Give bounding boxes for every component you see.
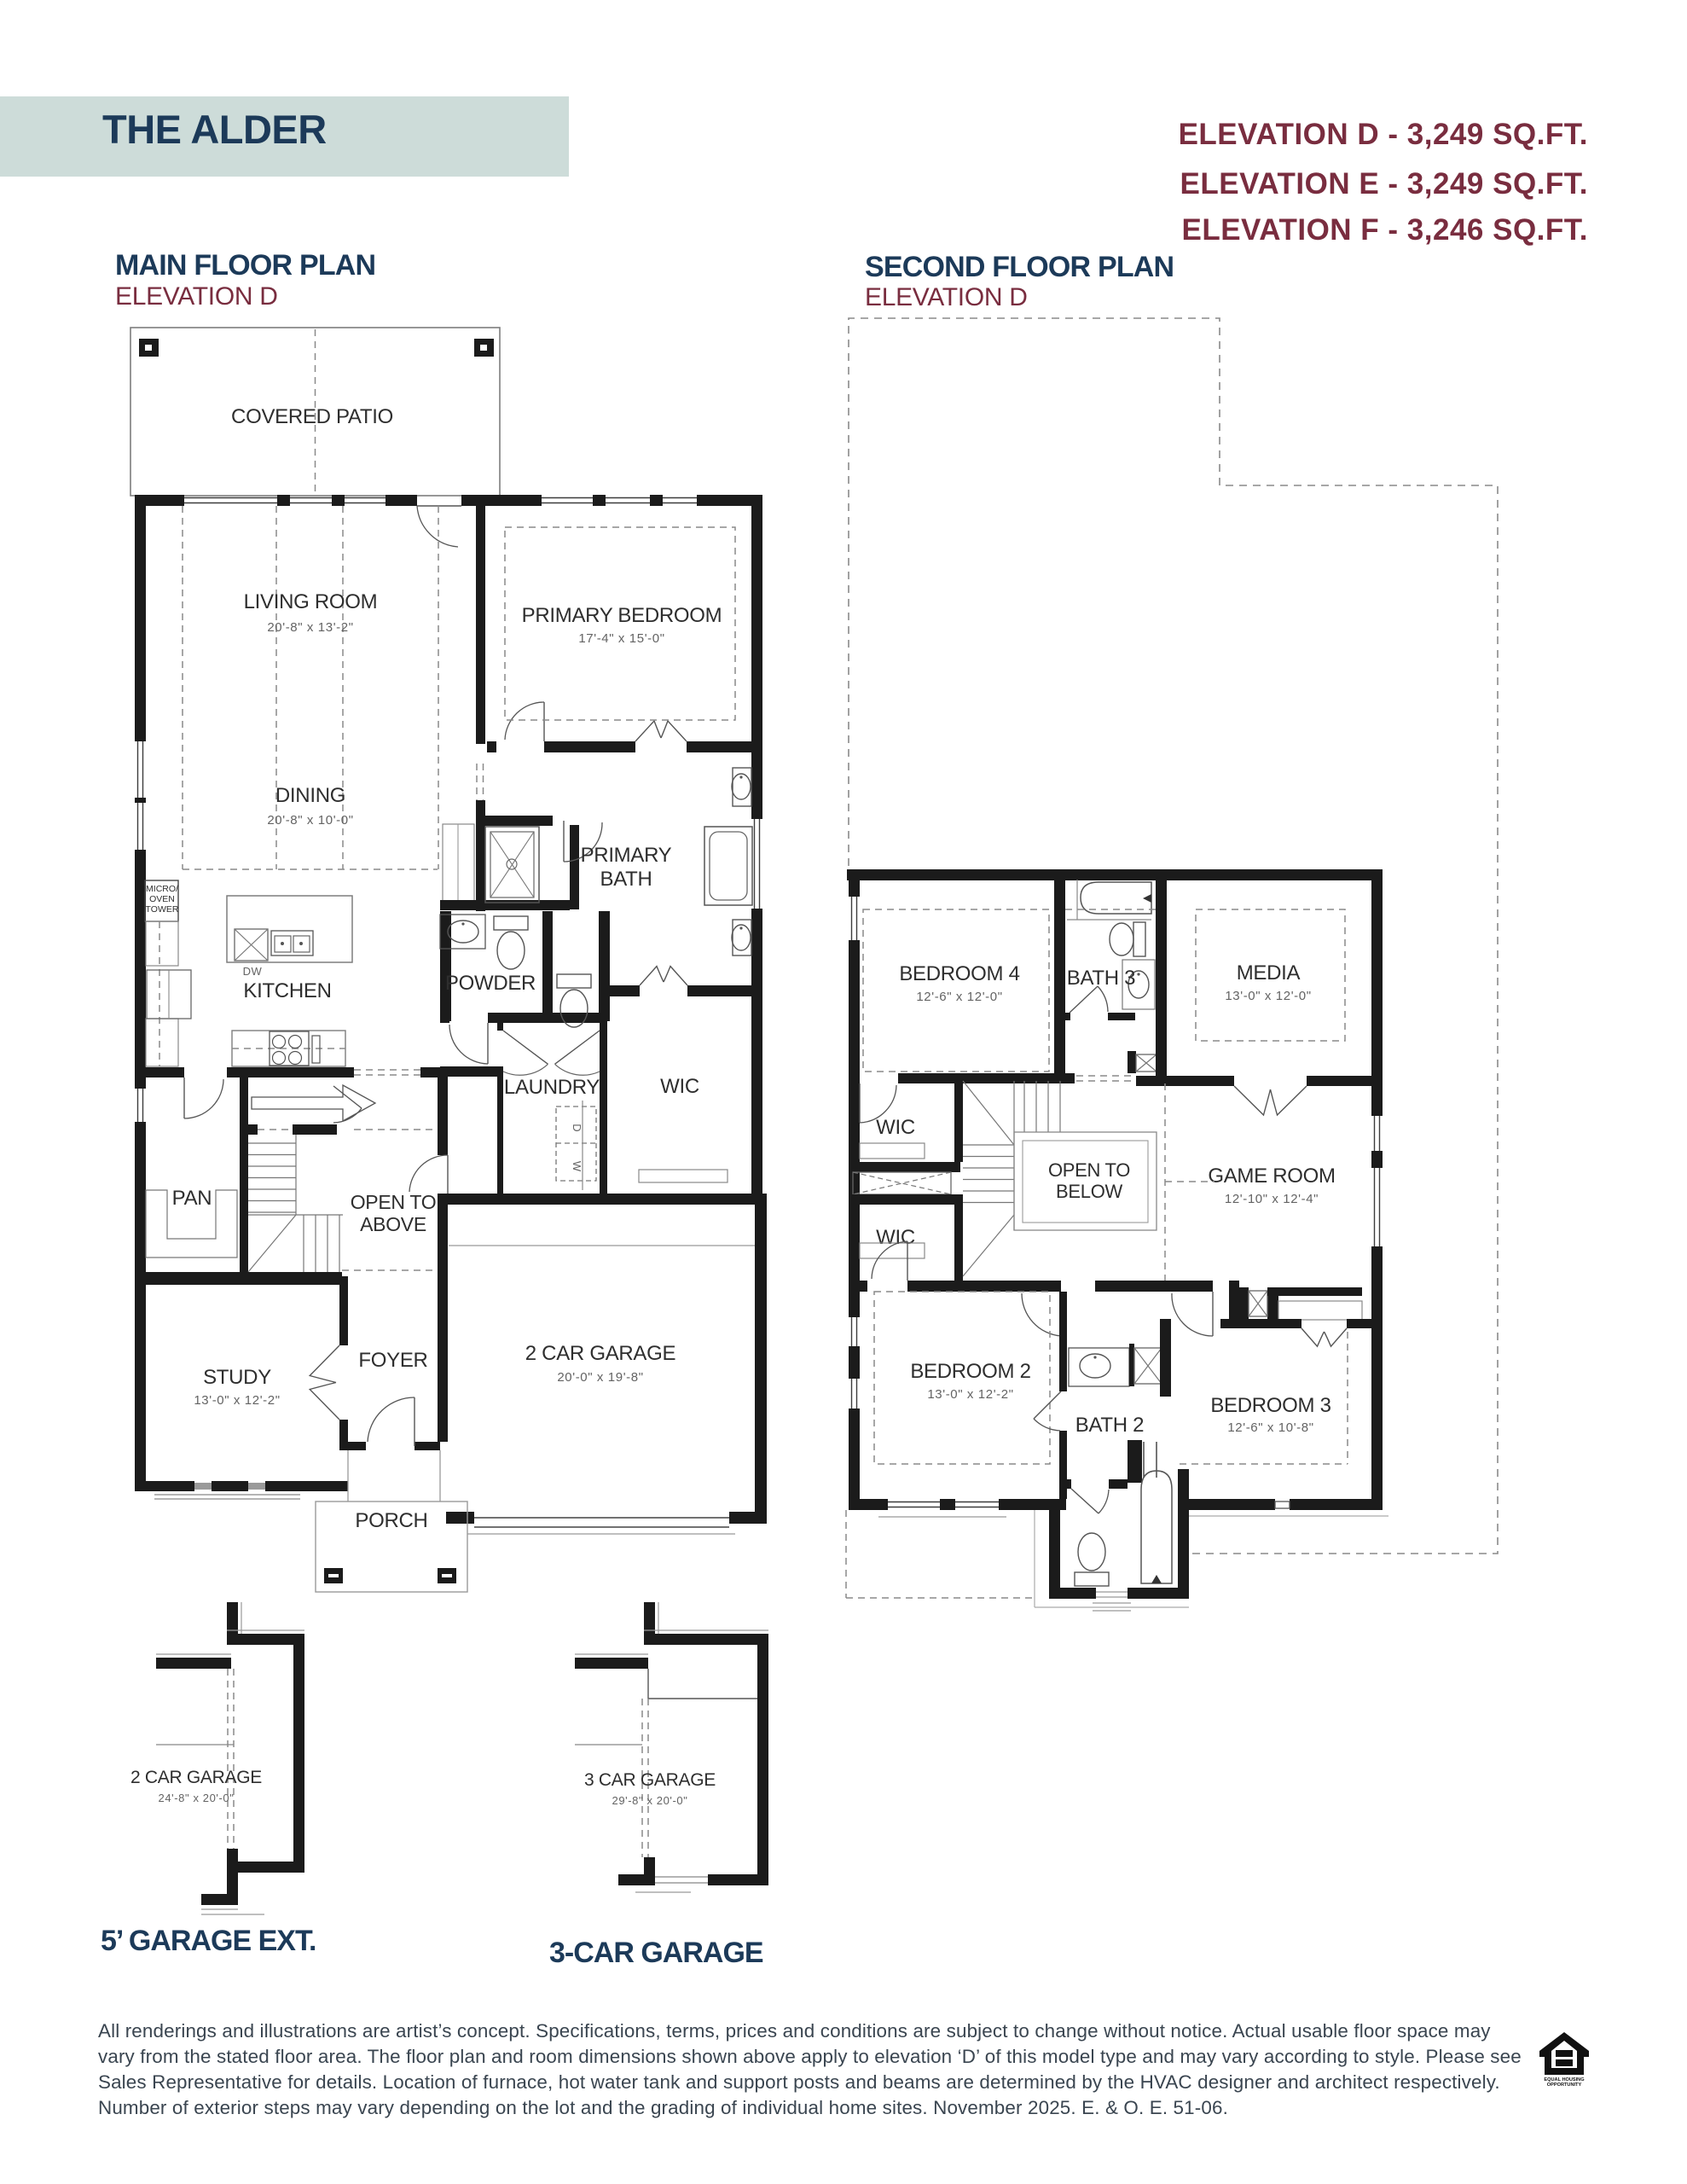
svg-text:DINING: DINING bbox=[275, 784, 345, 807]
svg-text:COVERED PATIO: COVERED PATIO bbox=[231, 405, 393, 428]
svg-text:W: W bbox=[571, 1161, 583, 1172]
svg-text:WIC: WIC bbox=[876, 1226, 915, 1249]
svg-text:LAUNDRY: LAUNDRY bbox=[504, 1076, 600, 1099]
svg-text:17'-4" x 15'-0": 17'-4" x 15'-0" bbox=[578, 631, 664, 646]
svg-text:OPEN TO: OPEN TO bbox=[1048, 1159, 1130, 1181]
svg-text:BEDROOM 4: BEDROOM 4 bbox=[899, 962, 1019, 985]
svg-text:DW: DW bbox=[243, 965, 263, 978]
svg-text:BEDROOM 3: BEDROOM 3 bbox=[1210, 1394, 1330, 1417]
svg-text:BATH 3: BATH 3 bbox=[1067, 967, 1135, 990]
svg-text:2 CAR GARAGE: 2 CAR GARAGE bbox=[525, 1342, 675, 1365]
svg-text:TOWER: TOWER bbox=[146, 904, 179, 915]
svg-text:PORCH: PORCH bbox=[355, 1509, 427, 1532]
svg-text:PRIMARY BEDROOM: PRIMARY BEDROOM bbox=[522, 604, 722, 627]
svg-text:OPPORTUNITY: OPPORTUNITY bbox=[1547, 2082, 1582, 2088]
svg-text:20'-8" x 13'-2": 20'-8" x 13'-2" bbox=[267, 620, 353, 635]
svg-text:12'-10" x 12'-4": 12'-10" x 12'-4" bbox=[1225, 1192, 1319, 1206]
svg-text:BEDROOM 2: BEDROOM 2 bbox=[910, 1360, 1030, 1383]
svg-text:20'-0" x 19'-8": 20'-0" x 19'-8" bbox=[557, 1370, 643, 1385]
svg-text:GAME ROOM: GAME ROOM bbox=[1208, 1165, 1335, 1188]
svg-text:POWDER: POWDER bbox=[445, 972, 536, 995]
svg-text:KITCHEN: KITCHEN bbox=[243, 979, 331, 1002]
svg-text:OVEN: OVEN bbox=[149, 894, 175, 904]
svg-text:LIVING ROOM: LIVING ROOM bbox=[244, 590, 378, 613]
svg-text:BELOW: BELOW bbox=[1056, 1181, 1122, 1202]
svg-text:13'-0" x 12'-2": 13'-0" x 12'-2" bbox=[194, 1393, 280, 1408]
svg-text:24'-8" x 20'-0": 24'-8" x 20'-0" bbox=[159, 1792, 235, 1804]
svg-text:20'-8" x 10'-0": 20'-8" x 10'-0" bbox=[267, 813, 353, 828]
svg-text:PRIMARY: PRIMARY bbox=[581, 844, 672, 867]
svg-text:29'-8" x 20'-0": 29'-8" x 20'-0" bbox=[612, 1794, 688, 1807]
svg-text:MICRO/: MICRO/ bbox=[146, 884, 178, 894]
svg-text:FOYER: FOYER bbox=[358, 1349, 427, 1372]
svg-text:13'-0" x 12'-2": 13'-0" x 12'-2" bbox=[927, 1387, 1013, 1402]
svg-text:12'-6" x 12'-0": 12'-6" x 12'-0" bbox=[916, 990, 1002, 1004]
svg-text:PAN: PAN bbox=[172, 1187, 212, 1210]
svg-text:OPEN TO: OPEN TO bbox=[351, 1191, 437, 1213]
svg-text:WIC: WIC bbox=[660, 1075, 699, 1098]
svg-text:WIC: WIC bbox=[876, 1116, 915, 1139]
svg-text:12'-6" x 10'-8": 12'-6" x 10'-8" bbox=[1227, 1420, 1313, 1435]
svg-text:2 CAR GARAGE: 2 CAR GARAGE bbox=[130, 1768, 262, 1787]
svg-text:BATH 2: BATH 2 bbox=[1075, 1414, 1144, 1437]
svg-text:3 CAR GARAGE: 3 CAR GARAGE bbox=[584, 1770, 716, 1790]
svg-text:STUDY: STUDY bbox=[203, 1366, 271, 1389]
svg-text:ABOVE: ABOVE bbox=[360, 1213, 426, 1235]
svg-text:BATH: BATH bbox=[600, 868, 652, 891]
svg-text:MEDIA: MEDIA bbox=[1237, 961, 1301, 985]
svg-text:13'-0" x 12'-0": 13'-0" x 12'-0" bbox=[1225, 989, 1311, 1003]
svg-text:D: D bbox=[571, 1124, 583, 1131]
